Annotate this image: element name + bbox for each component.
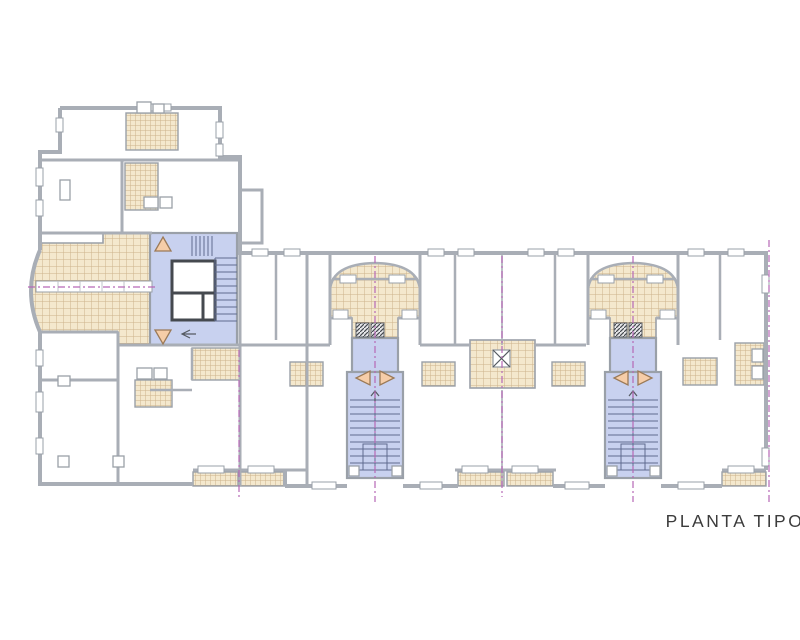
threshold-hatch (629, 323, 642, 337)
window-marker (728, 466, 754, 473)
window-marker (333, 310, 348, 319)
window-marker (512, 466, 538, 473)
bathroom-lower-left-tile (135, 380, 172, 407)
threshold-hatch (356, 323, 369, 337)
bathroom-core2-left (552, 362, 585, 386)
window-marker (36, 392, 43, 412)
window-marker (312, 482, 336, 489)
fixture (137, 102, 151, 113)
window-marker (565, 482, 589, 489)
window-marker (216, 122, 223, 138)
wall-column (58, 376, 70, 386)
window-marker (36, 200, 43, 216)
balcony-strip-1 (193, 472, 238, 486)
window-marker (528, 249, 544, 256)
window-marker (284, 249, 300, 256)
window-marker (660, 310, 675, 319)
landing-corner (392, 466, 402, 476)
threshold-hatch (371, 323, 384, 337)
fixture (154, 368, 167, 379)
window-marker (248, 466, 274, 473)
window-marker (558, 249, 574, 256)
window-marker (458, 249, 474, 256)
window-marker (198, 466, 224, 473)
window-marker (216, 144, 223, 156)
fixture (160, 197, 172, 208)
balcony-strip-2 (240, 472, 285, 486)
fixture (144, 197, 158, 208)
window-marker (598, 275, 614, 283)
window-marker (56, 118, 63, 132)
window-marker (389, 275, 405, 283)
window-marker (36, 350, 43, 366)
balcony-strip-4 (507, 472, 553, 486)
window-marker (420, 482, 442, 489)
bathroom-core1-right (422, 362, 455, 386)
window-marker (647, 275, 663, 283)
fixture (752, 366, 763, 379)
fixture (153, 104, 164, 113)
fixture (752, 349, 763, 362)
window-marker (340, 275, 356, 283)
bathroom-top-tile (126, 113, 178, 150)
window-marker (762, 448, 769, 466)
bathroom-mid-tile (192, 348, 240, 380)
fixture (137, 368, 152, 379)
furniture-square (58, 456, 69, 467)
window-marker (252, 249, 268, 256)
plan-title: PLANTA TIPO (666, 511, 800, 531)
floor-plan-drawing: PLANTA TIPO (0, 0, 800, 640)
threshold-hatch (614, 323, 627, 337)
window-marker (591, 310, 606, 319)
landing-corner (607, 466, 617, 476)
window-marker (36, 438, 43, 454)
balcony-strip-3 (458, 472, 504, 486)
landing-corner (650, 466, 660, 476)
window-marker (688, 249, 704, 256)
bathroom-right-a (683, 358, 717, 385)
landing-corner (349, 466, 359, 476)
window-marker (762, 275, 769, 293)
window-marker (728, 249, 744, 256)
elevator-shaft (172, 261, 215, 320)
balcony-strip-5 (722, 472, 766, 486)
window-marker (678, 482, 704, 489)
window-marker (402, 310, 417, 319)
window-inset (60, 180, 70, 200)
furniture-square (113, 456, 124, 467)
window-marker (36, 168, 43, 186)
window-marker (428, 249, 444, 256)
floor-plan-page: PLANTA TIPO (0, 0, 800, 640)
window-marker (462, 466, 488, 473)
